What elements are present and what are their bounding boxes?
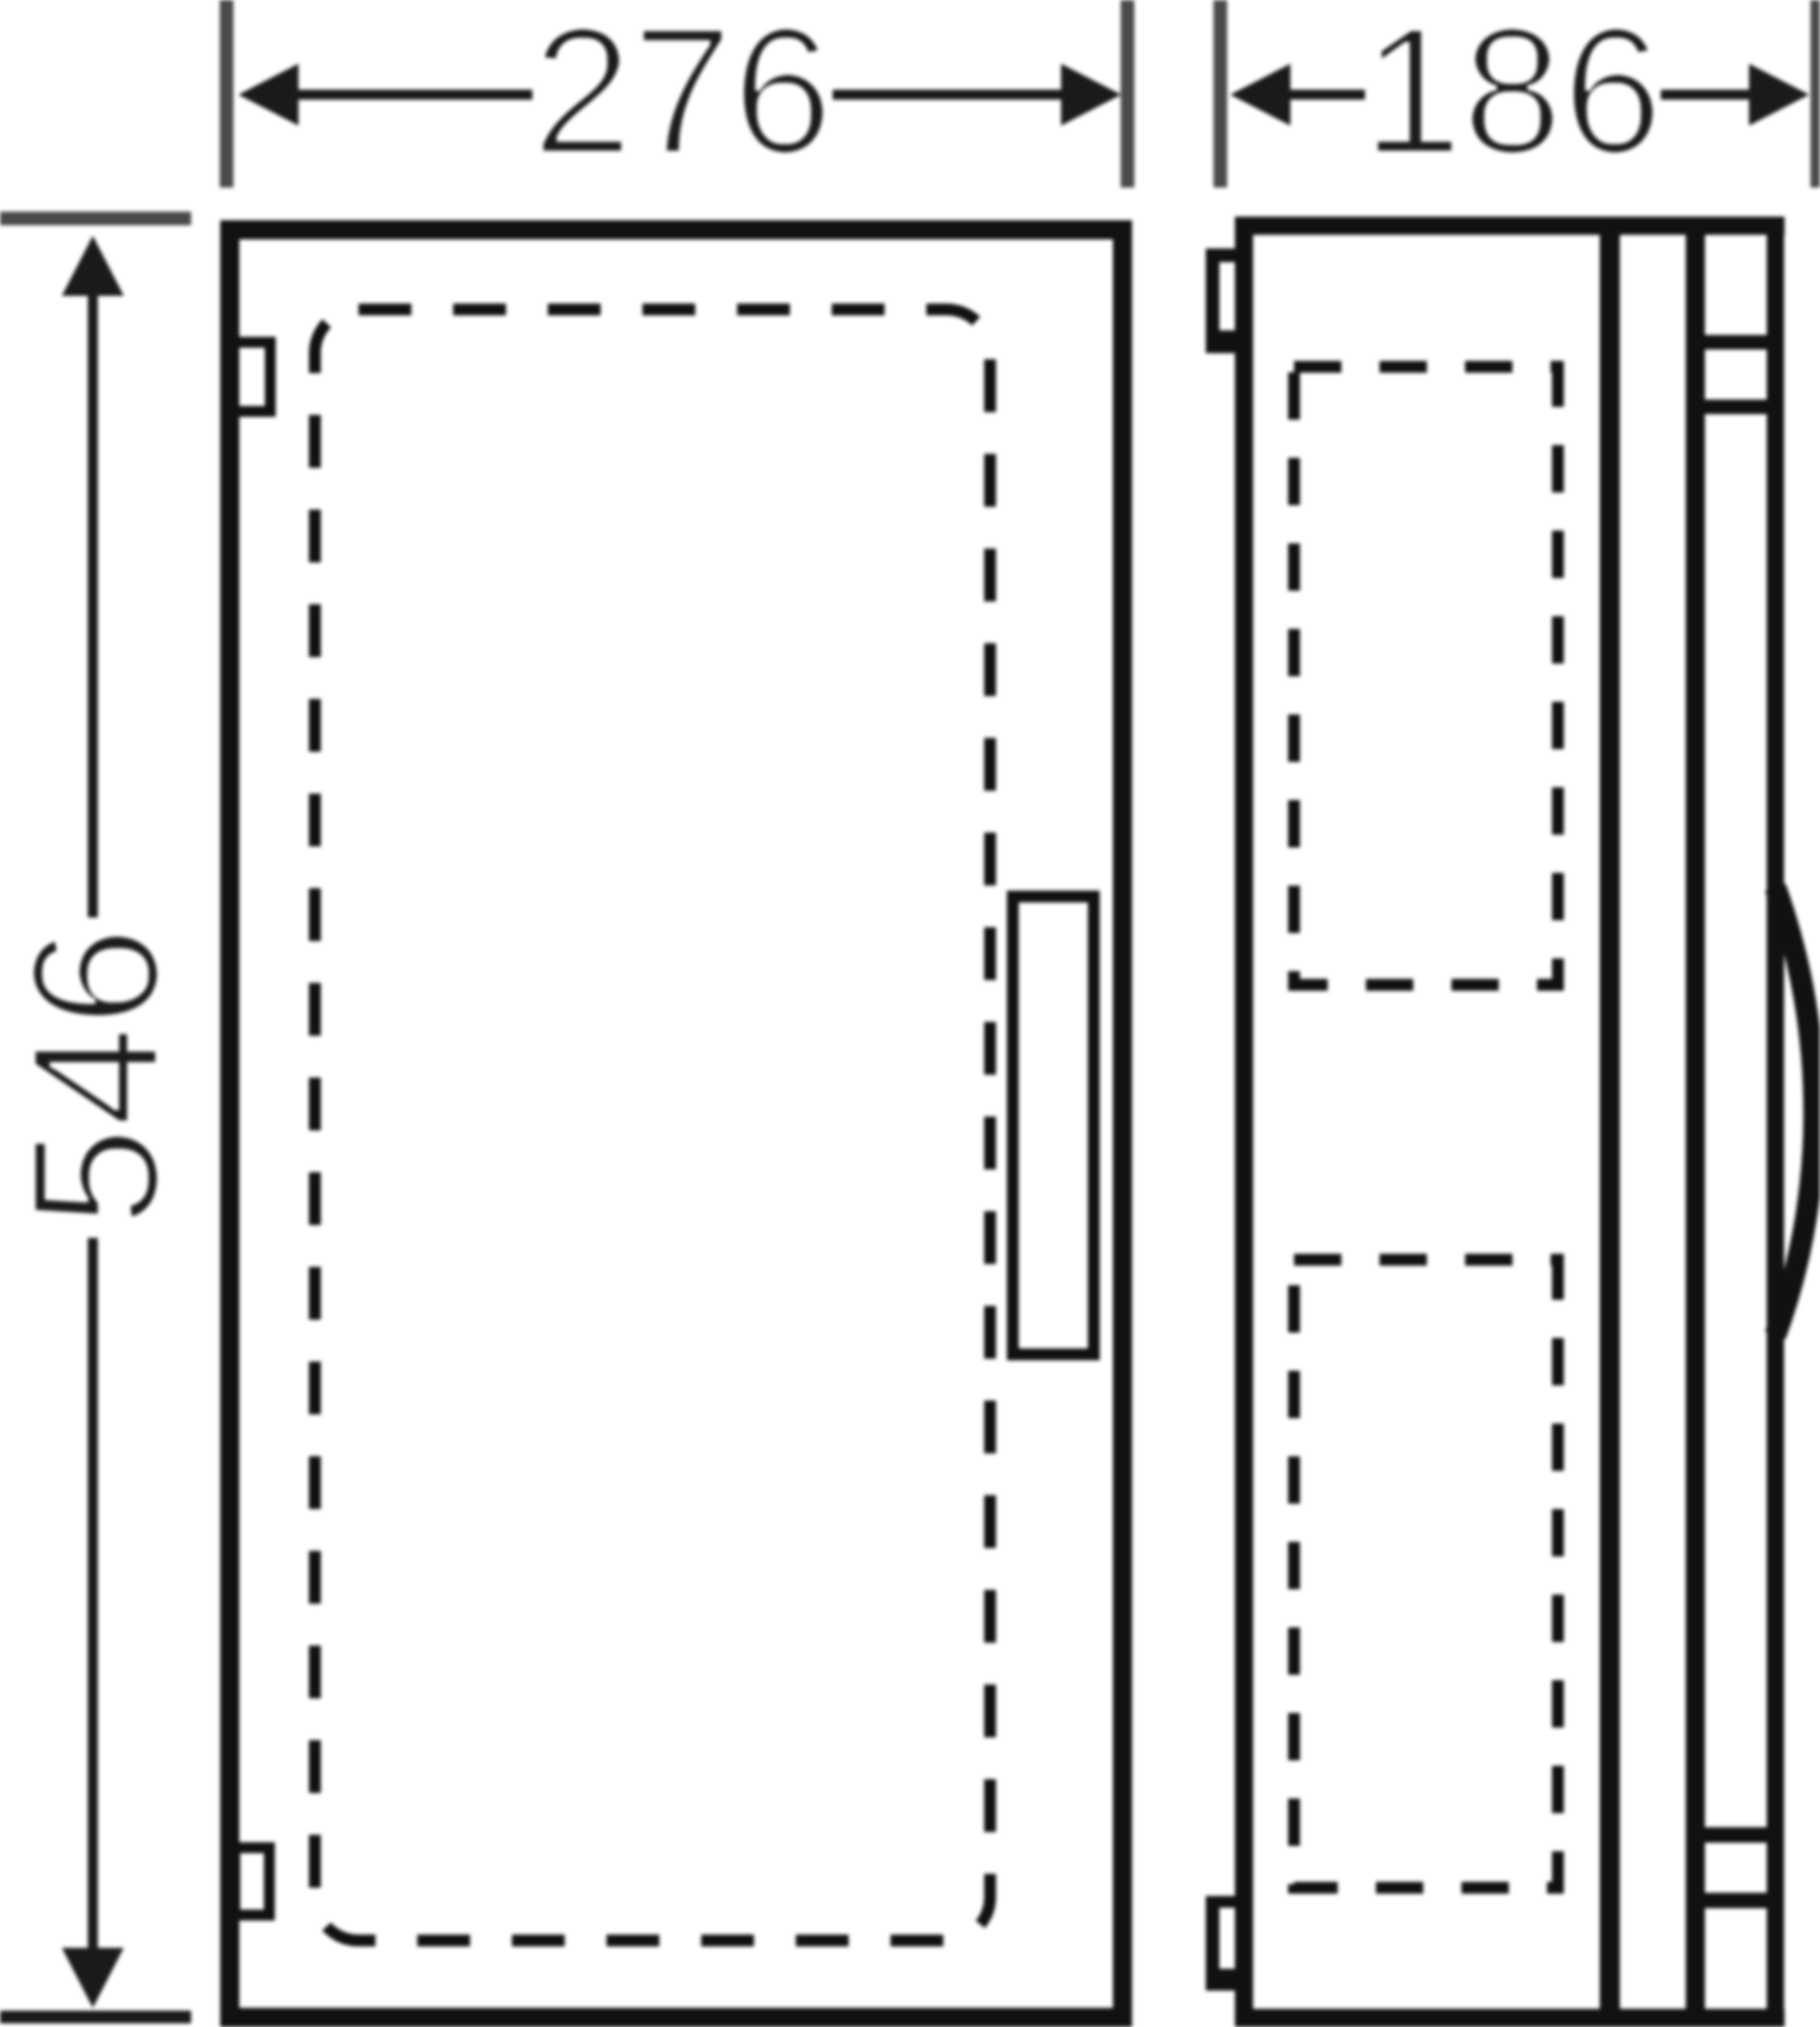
svg-text:546: 546 (0, 927, 196, 1227)
svg-text:276: 276 (532, 0, 833, 191)
svg-text:186: 186 (1362, 0, 1663, 191)
